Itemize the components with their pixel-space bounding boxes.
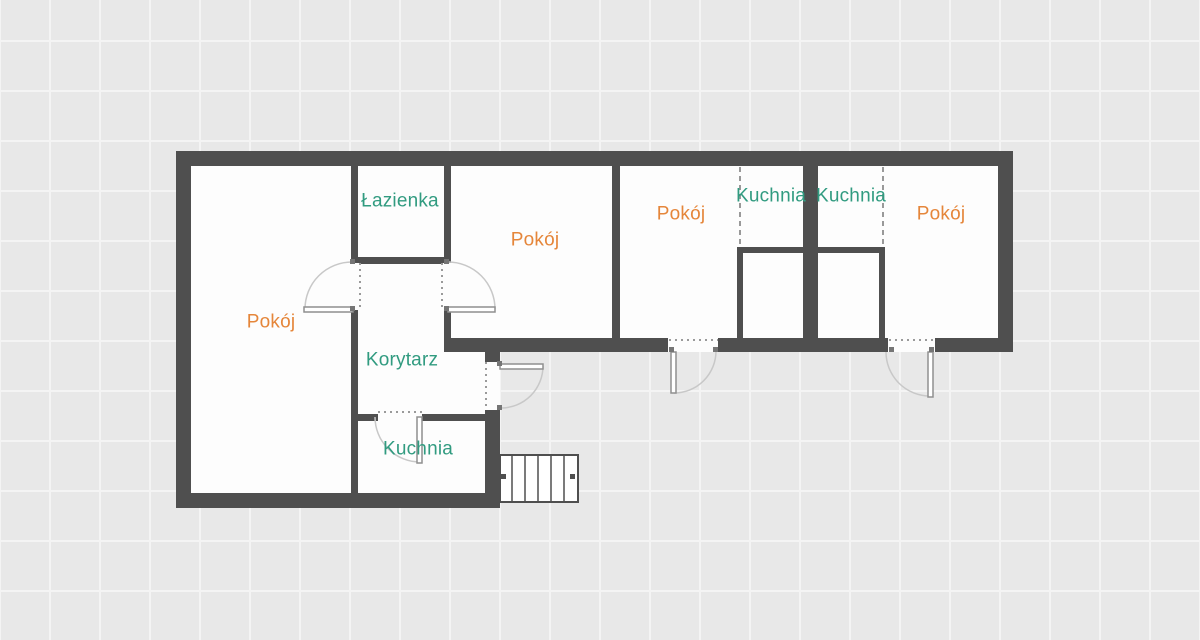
stairs [500, 455, 578, 502]
room-label-pokoj-left: Pokój [247, 313, 296, 332]
door-opening-entrance-right [888, 338, 935, 352]
door-leaf-entrance-middle [671, 352, 676, 393]
room-label-kuchnia-left: Kuchnia [383, 440, 453, 459]
door-leaf-korytarz-exit [500, 364, 543, 369]
floor-main-section [451, 166, 998, 338]
room-label-pokoj-second: Pokój [657, 205, 706, 224]
stairs-direction-mark [570, 474, 575, 479]
wall-closet-middle-left [737, 247, 743, 338]
wall-section-divider [803, 151, 818, 352]
room-label-kuchnia-middle: Kuchnia [736, 187, 806, 206]
door-opening-kuchnia-left [378, 414, 422, 421]
wall-outer-top [176, 151, 1013, 166]
wall-pokoj-middle-divider [612, 166, 620, 338]
wall-closet-right-side [879, 247, 885, 338]
door-opening-pokoj-left [350, 263, 359, 310]
door-opening-pokoj-middle [443, 263, 452, 310]
stairs-direction-mark [501, 474, 506, 479]
door-opening-korytarz-exit [485, 362, 500, 410]
door-arc-entrance-middle [674, 351, 716, 393]
wall-outer-left [176, 151, 191, 508]
room-label-lazienka: Łazienka [361, 192, 439, 211]
door-leaf-entrance-right [928, 352, 933, 397]
room-label-korytarz: Korytarz [366, 351, 438, 370]
door-opening-entrance-middle [668, 338, 718, 352]
wall-lazienka-bottom [351, 257, 451, 264]
room-label-kuchnia-right: Kuchnia [816, 187, 886, 206]
wall-korytarz-pokoj [444, 166, 451, 338]
floor-plan-canvas: Pokój Łazienka Pokój Pokój Kuchnia Kuchn… [0, 0, 1200, 640]
wall-closet-right-top [818, 247, 885, 253]
door-arc-korytarz-exit [501, 366, 543, 408]
room-label-pokoj-right: Pokój [917, 205, 966, 224]
door-arc-entrance-right [886, 352, 930, 396]
wall-pokoj-left-divider [351, 166, 358, 493]
room-label-pokoj-middle: Pokój [511, 231, 560, 250]
wall-closet-middle-top [737, 247, 803, 253]
stairs-outline [500, 455, 578, 502]
wall-outer-right [998, 151, 1013, 352]
wall-outer-bottom-left-section [176, 493, 500, 508]
